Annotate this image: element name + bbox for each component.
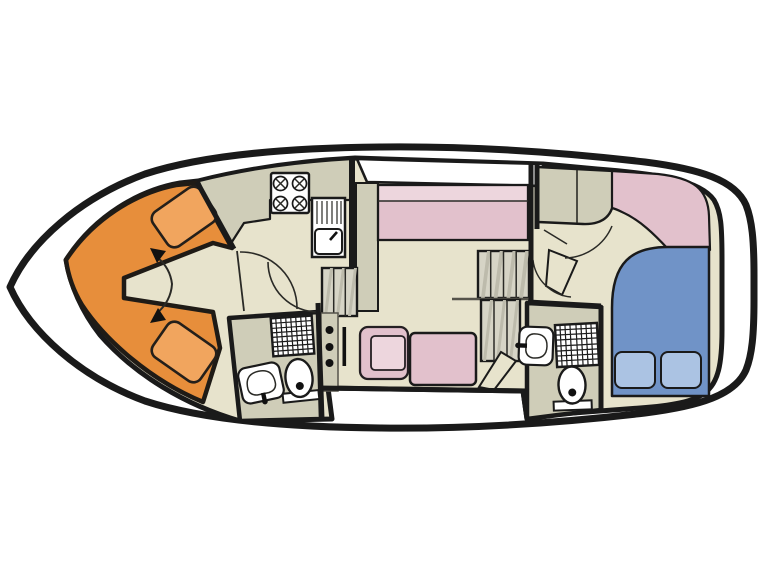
companionway-steps (322, 268, 357, 316)
shower-forward (271, 316, 315, 357)
galley-sink (312, 198, 345, 257)
helm-gauge-dot (326, 359, 334, 367)
deck-white-strip (357, 159, 543, 186)
pillow-right (661, 352, 701, 388)
washbasin-aft (515, 326, 554, 365)
floorplan-canvas (0, 0, 768, 576)
salon-bench (378, 185, 528, 240)
wall (318, 388, 529, 391)
helm-gauge-dot (326, 343, 334, 351)
pillow-left (615, 352, 655, 388)
aft-wardrobe (538, 167, 614, 224)
helm-seat (360, 327, 408, 379)
stove-icon (271, 173, 309, 213)
boat-floorplan (0, 0, 768, 576)
helm-gauge-dot (326, 326, 334, 334)
helm-lever (343, 327, 347, 366)
shower-aft (555, 323, 599, 367)
flybridge-stairs-upper (478, 251, 529, 298)
salon-sideboard (356, 183, 378, 311)
salon-table (410, 333, 476, 385)
